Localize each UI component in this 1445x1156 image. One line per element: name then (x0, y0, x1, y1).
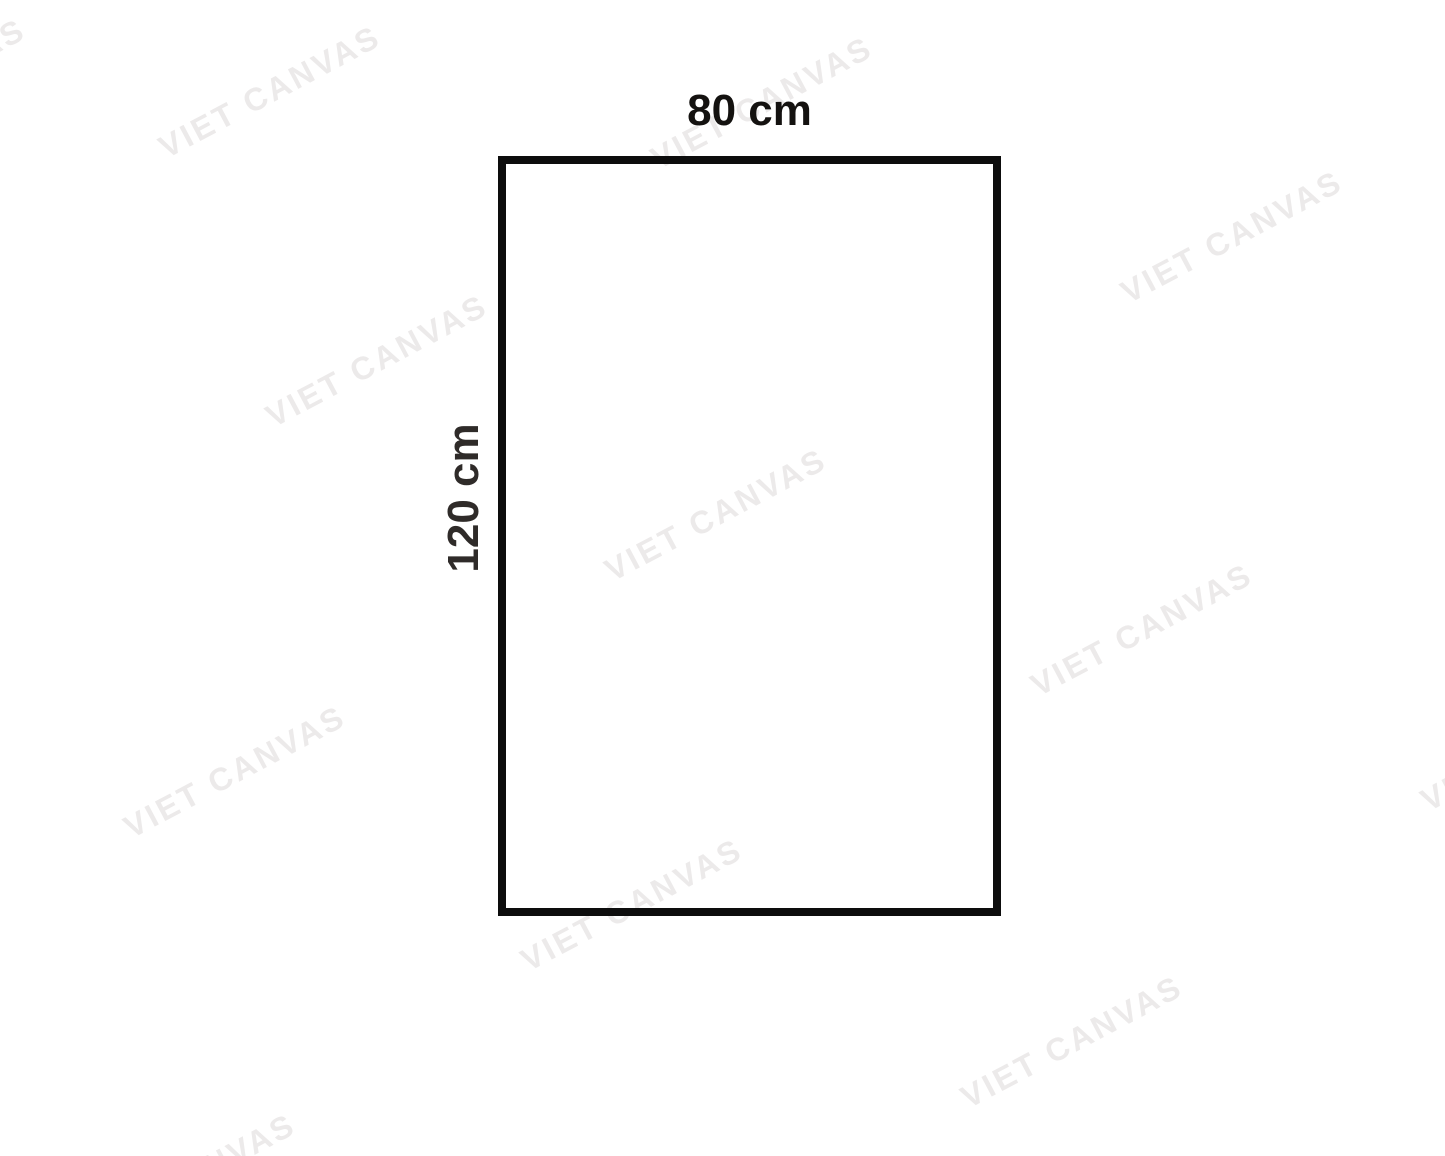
viet-canvas-watermark: VIET CANVAS (118, 698, 352, 846)
viet-canvas-watermark: VIET CANVAS (955, 968, 1189, 1116)
viet-canvas-watermark: VIET CANVAS (0, 11, 32, 159)
height-dimension-label: 120 cm (439, 423, 489, 572)
width-dimension-label: 80 cm (498, 86, 1001, 136)
canvas-outline-rectangle (498, 156, 1001, 916)
viet-canvas-watermark: VIET CANVAS (1115, 163, 1349, 311)
viet-canvas-watermark: VIET CANVAS (260, 287, 494, 435)
viet-canvas-watermark: VIET CANVAS (1415, 671, 1445, 819)
product-dimension-diagram: VIET CANVASVIET CANVASVIET CANVASVIET CA… (0, 0, 1445, 1156)
viet-canvas-watermark: VIET CANVAS (1025, 556, 1259, 704)
viet-canvas-watermark: VIET CANVAS (68, 1106, 302, 1156)
viet-canvas-watermark: VIET CANVAS (153, 18, 387, 166)
